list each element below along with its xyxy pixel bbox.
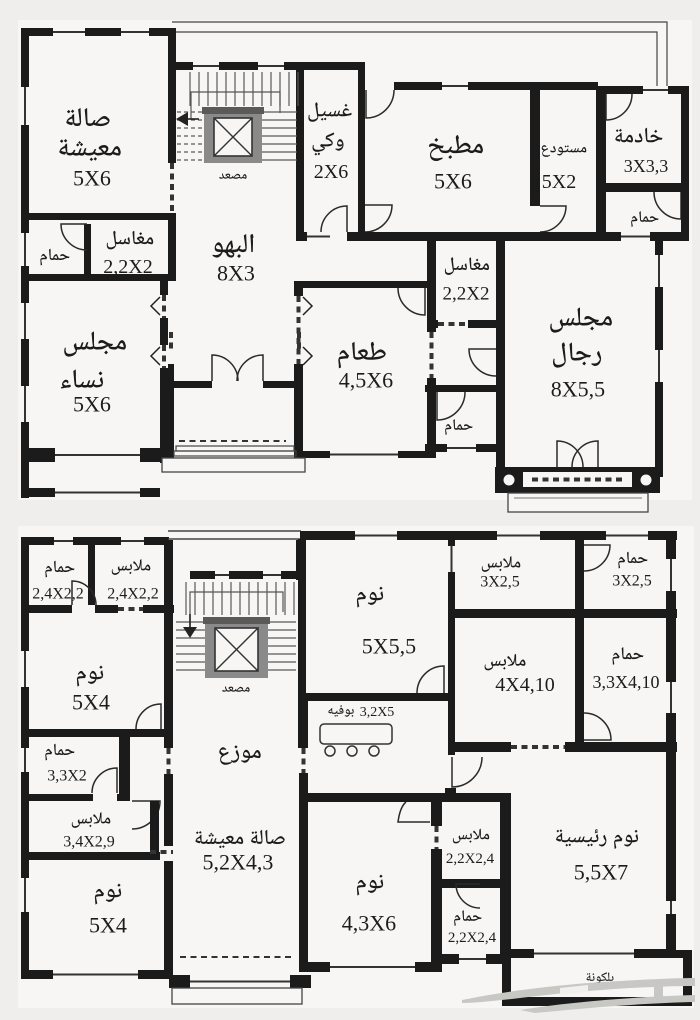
svg-text:5X6: 5X6 bbox=[73, 166, 111, 191]
svg-text:3X2,5: 3X2,5 bbox=[612, 572, 652, 589]
svg-text:3,3X2: 3,3X2 bbox=[47, 767, 87, 784]
svg-text:5X6: 5X6 bbox=[434, 169, 472, 194]
svg-text:3X3,3: 3X3,3 bbox=[624, 156, 669, 176]
svg-text:2,4X2,2: 2,4X2,2 bbox=[107, 585, 159, 602]
svg-text:2X6: 2X6 bbox=[314, 161, 348, 183]
svg-text:4X4,10: 4X4,10 bbox=[495, 674, 554, 696]
svg-text:3,2X5: 3,2X5 bbox=[360, 705, 395, 720]
svg-text:5,2X4,3: 5,2X4,3 bbox=[203, 850, 274, 875]
svg-text:3,4X2,9: 3,4X2,9 bbox=[63, 833, 115, 850]
svg-text:4,5X6: 4,5X6 bbox=[339, 368, 393, 393]
svg-text:3X2,5: 3X2,5 bbox=[480, 573, 520, 590]
svg-text:8X5,5: 8X5,5 bbox=[551, 377, 605, 402]
svg-text:2,2X2: 2,2X2 bbox=[103, 256, 152, 278]
svg-text:5X4: 5X4 bbox=[89, 913, 127, 938]
svg-text:5X2: 5X2 bbox=[542, 171, 576, 193]
svg-text:5,5X7: 5,5X7 bbox=[574, 860, 628, 885]
svg-text:3,3X4,10: 3,3X4,10 bbox=[593, 672, 660, 692]
svg-text:5X5,5: 5X5,5 bbox=[362, 634, 416, 659]
svg-text:4,3X6: 4,3X6 bbox=[342, 911, 396, 936]
svg-text:2,4X2,2: 2,4X2,2 bbox=[32, 585, 84, 602]
svg-text:5X6: 5X6 bbox=[73, 392, 111, 417]
svg-text:2,2X2,4: 2,2X2,4 bbox=[448, 930, 497, 946]
svg-text:5X4: 5X4 bbox=[72, 690, 110, 715]
svg-text:2,2X2: 2,2X2 bbox=[443, 284, 490, 305]
svg-text:2,2X2,4: 2,2X2,4 bbox=[446, 851, 495, 867]
svg-text:8X3: 8X3 bbox=[217, 261, 255, 286]
